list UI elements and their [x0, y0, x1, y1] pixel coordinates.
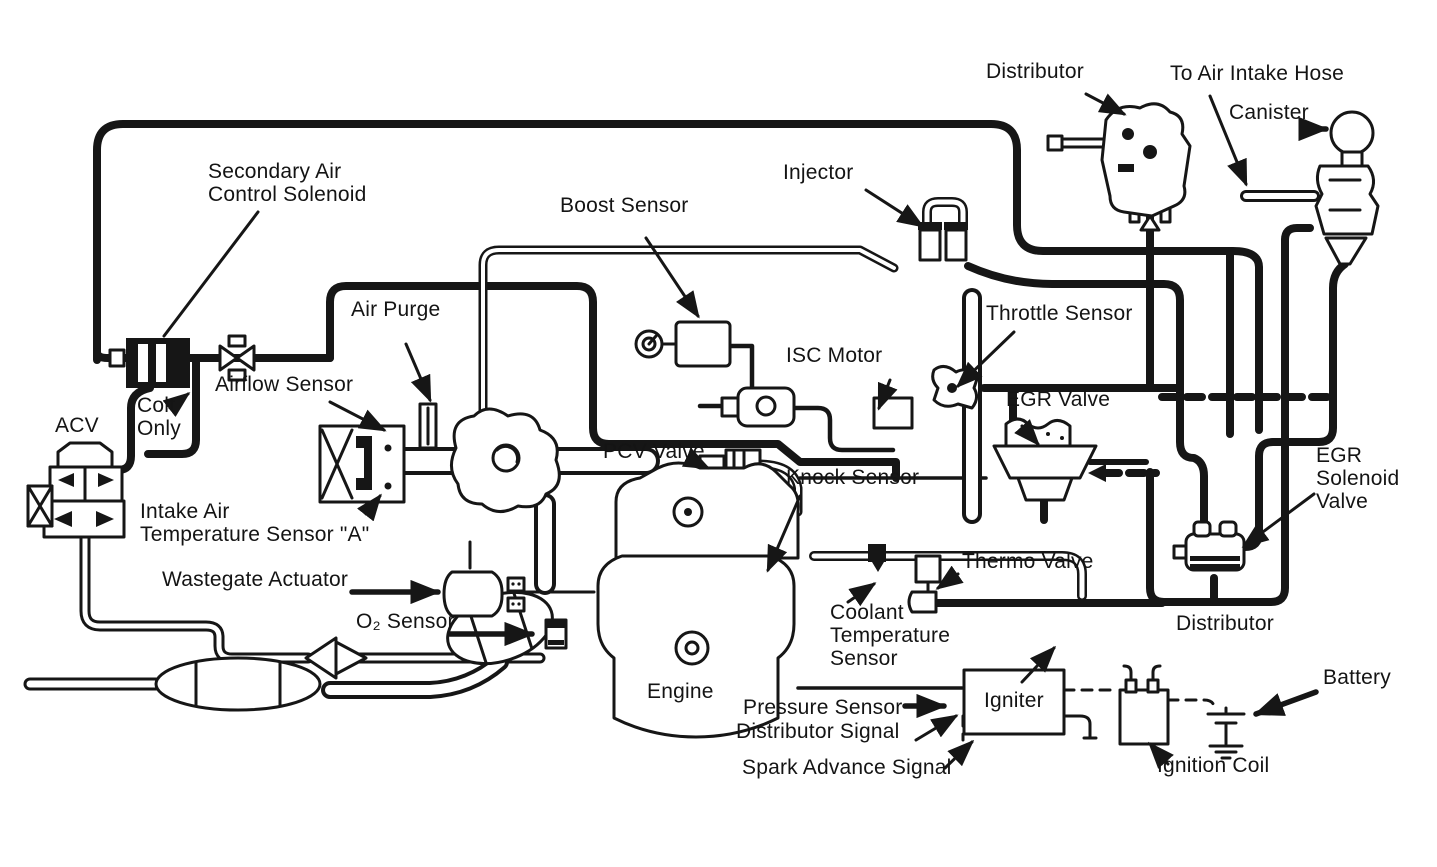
- acv-valve-icon: [28, 443, 124, 537]
- canister-left-hose: [1285, 228, 1310, 240]
- isc-motor-icon: [722, 388, 794, 426]
- exhaust-venturi-icon: [306, 638, 366, 678]
- canister-icon: [1316, 112, 1378, 264]
- battery-arrow: [1256, 692, 1316, 714]
- muffler-icon: [156, 658, 320, 710]
- label-airflow-sensor: Airflow Sensor: [215, 373, 353, 396]
- label-pcv-valve: PCV Valve: [603, 440, 705, 463]
- distributor-icon: [1048, 104, 1190, 216]
- label-ignition-coil: Ignition Coil: [1157, 754, 1269, 777]
- label-canister: Canister: [1229, 101, 1309, 124]
- label-o2-sensor: O₂ Sensor: [356, 610, 455, 633]
- coil-to-battery-wire: [1168, 700, 1214, 708]
- label-battery: Battery: [1323, 666, 1391, 689]
- label-engine: Engine: [647, 680, 714, 703]
- label-boost-sensor: Boost Sensor: [560, 194, 688, 217]
- label-colt-only: Colt Only: [137, 394, 181, 440]
- o2-sensor-icon: [546, 620, 566, 648]
- igniter-ground-hook: [1064, 716, 1096, 738]
- label-distributor-bottom: Distributor: [1176, 612, 1274, 635]
- battery-icon: [1208, 708, 1244, 758]
- ignition-coil-icon: [1120, 666, 1168, 744]
- acv-drain-pipe: [85, 536, 308, 658]
- label-isc-motor: ISC Motor: [786, 344, 882, 367]
- label-igniter: Igniter: [984, 689, 1044, 712]
- label-acv: ACV: [55, 414, 99, 437]
- label-secondary-air: Secondary Air Control Solenoid: [208, 160, 366, 206]
- label-intake-air-temp: Intake Air Temperature Sensor "A": [140, 500, 369, 546]
- label-throttle-sensor: Throttle Sensor: [986, 302, 1133, 325]
- label-wastegate-actuator: Wastegate Actuator: [162, 568, 348, 591]
- flow-arrow-icon: [1088, 464, 1106, 482]
- label-egr-solenoid-valve: EGR Solenoid Valve: [1316, 444, 1399, 513]
- turbocharger-icon: [451, 409, 559, 512]
- secondary-air-solenoid-icon: [110, 338, 190, 388]
- egr-solenoid-arrow: [1244, 494, 1314, 546]
- air-purge-nipple-icon: [420, 404, 436, 448]
- injector-arrow: [866, 190, 922, 226]
- egr-valve-icon: [994, 419, 1096, 500]
- diagram-canvas: [0, 0, 1437, 867]
- label-knock-sensor: Knock Sensor: [786, 466, 919, 489]
- vacuum-diagram: Distributor To Air Intake Hose Canister …: [0, 0, 1437, 867]
- coolant-temp-sensor-icon: [868, 544, 886, 572]
- label-pressure-sensor: Pressure Sensor: [743, 696, 902, 719]
- cylinder-head-icon: [616, 463, 798, 558]
- label-egr-valve: EGR Valve: [1006, 388, 1110, 411]
- egr-solenoid-valve-icon: [1174, 522, 1244, 570]
- distributor-top-arrow: [1086, 94, 1124, 114]
- label-distributor-top: Distributor: [986, 60, 1084, 83]
- airflow-sensor-icon: [320, 426, 404, 502]
- label-thermo-valve: Thermo Valve: [962, 550, 1094, 573]
- label-distributor-signal: Distributor Signal: [736, 720, 900, 743]
- label-to-air-intake-hose: To Air Intake Hose: [1170, 62, 1344, 85]
- coolant-temp-arrow: [848, 584, 874, 602]
- label-spark-advance-signal: Spark Advance Signal: [742, 756, 951, 779]
- label-air-purge: Air Purge: [351, 298, 440, 321]
- injector-icon: [918, 222, 968, 260]
- boost-sensor-icon: [636, 322, 730, 366]
- label-coolant-temp: Coolant Temperature Sensor: [830, 601, 950, 670]
- label-injector: Injector: [783, 161, 853, 184]
- air-purge-arrow: [406, 344, 430, 400]
- secondary-air-leader: [164, 212, 258, 336]
- distributor-signal-arrow: [916, 716, 956, 740]
